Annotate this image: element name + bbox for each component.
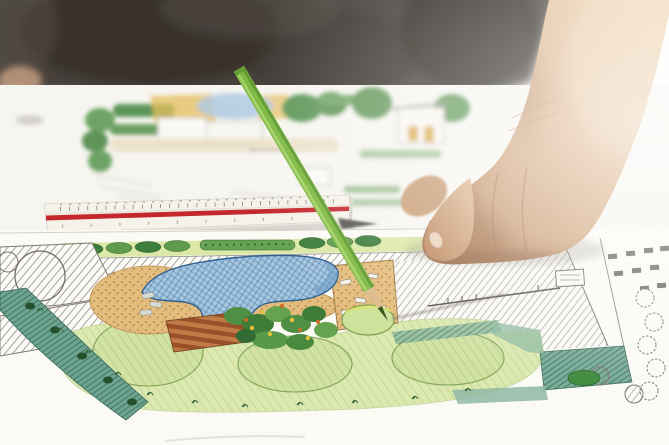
photo-landscape-plan-drawing: Close-up photo: a hand holding a green c… — [0, 0, 669, 445]
sunlight-overlay — [0, 0, 669, 445]
